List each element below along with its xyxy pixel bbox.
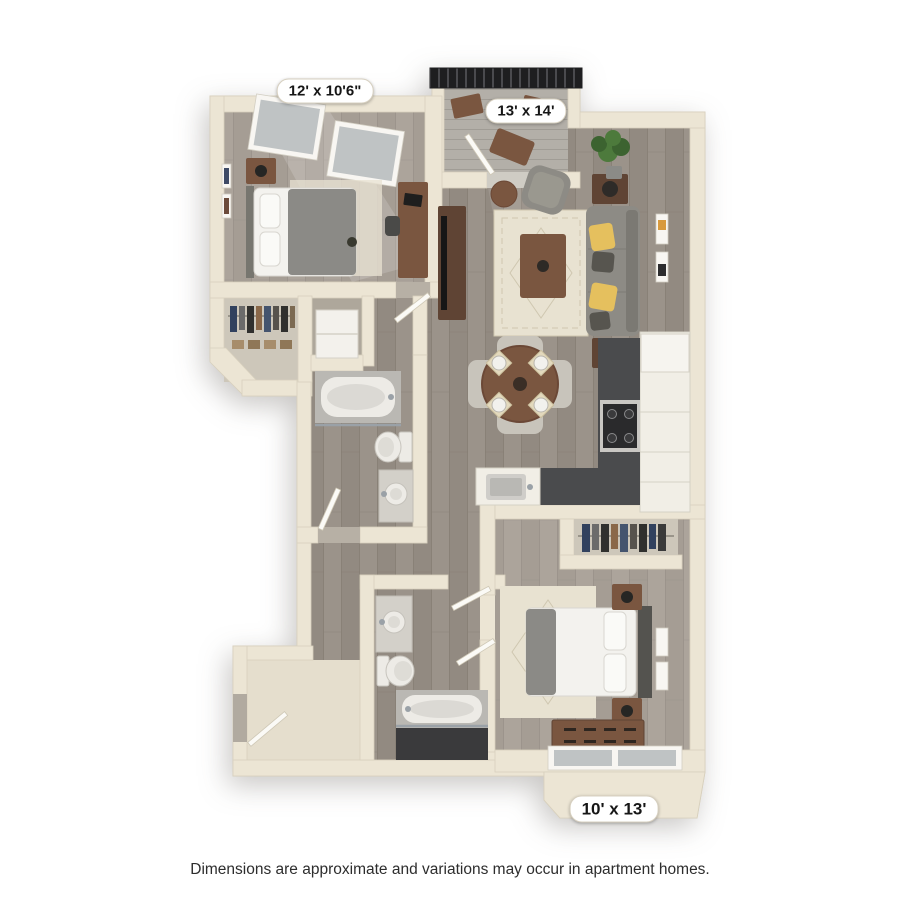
bedroom2-lamp	[621, 591, 633, 603]
bedroom1-headboard	[246, 186, 254, 278]
wall-art-frame	[656, 628, 668, 656]
side-table-tray	[602, 181, 618, 197]
bathroom2-tub-basin	[410, 700, 474, 718]
sofa-pillow-yellow	[588, 222, 616, 251]
floor-lamp	[347, 237, 357, 247]
bedroom2-dresser	[552, 720, 644, 750]
bathroom1-tub-faucet	[388, 394, 394, 400]
lower-hall-floor-2	[311, 575, 360, 660]
desk-chair	[385, 216, 400, 236]
round-accent-table	[491, 181, 517, 207]
balcony-railing	[430, 68, 582, 88]
desk-laptop	[403, 193, 422, 207]
dimension-label-living: 13' x 14'	[485, 99, 566, 124]
bedroom1-lamp	[255, 165, 267, 177]
kitchen-sink-basin	[490, 478, 522, 496]
entry-floor	[247, 660, 360, 760]
dimension-label-bedroom2: 10' x 13'	[570, 796, 659, 823]
bedroom2-lamp	[621, 705, 633, 717]
bathroom1-toilet-seat	[378, 437, 394, 457]
dimension-label-bedroom1: 12' x 10'6"	[277, 79, 374, 104]
wall-art	[658, 264, 666, 276]
sofa-pillow-dark	[589, 311, 611, 331]
sofa-pillow-dark	[591, 251, 615, 273]
tv	[441, 216, 447, 310]
refrigerator	[641, 334, 689, 372]
wall-art	[224, 168, 229, 184]
dining-centerpiece	[513, 377, 527, 391]
bathroom2-sink-basin	[388, 616, 400, 628]
bedroom2-window-pane	[554, 750, 612, 766]
floorplan-rendering	[0, 0, 900, 900]
closet2-clothes	[582, 524, 666, 552]
bathroom2-tub-front	[396, 728, 488, 760]
bedroom2-pillow	[604, 612, 626, 650]
bedroom2-headboard	[638, 606, 652, 698]
bedroom2-pillow	[604, 654, 626, 692]
bathroom2-faucet	[379, 619, 385, 625]
lower-hall-floor	[311, 541, 427, 575]
wall-art	[658, 220, 666, 230]
floorplan-page: 12' x 10'6" 13' x 14' 10' x 13' Dimensio…	[0, 0, 900, 900]
disclaimer-text: Dimensions are approximate and variation…	[0, 861, 900, 879]
bathroom1-faucet	[381, 491, 387, 497]
bathroom1-tub-basin	[327, 384, 385, 410]
bedroom1-pillow	[260, 232, 280, 266]
kitchen-counter-bottom	[540, 468, 640, 505]
bathroom1-sink-basin	[390, 488, 402, 500]
closet2	[574, 519, 678, 555]
bedroom2-throw	[526, 609, 556, 695]
wall-art-frame	[656, 662, 668, 690]
bedroom2-window-pane	[618, 750, 676, 766]
coffee-table-decor	[537, 260, 549, 272]
sofa-pillow-yellow	[588, 282, 618, 312]
kitchen-faucet	[527, 484, 533, 490]
bathroom2-tub-faucet	[405, 706, 411, 712]
sofa-back	[626, 210, 638, 332]
bedroom1-blanket	[288, 189, 356, 275]
bathroom2-toilet-seat	[394, 661, 412, 681]
wall-art	[224, 198, 229, 214]
bedroom1-pillow	[260, 194, 280, 228]
